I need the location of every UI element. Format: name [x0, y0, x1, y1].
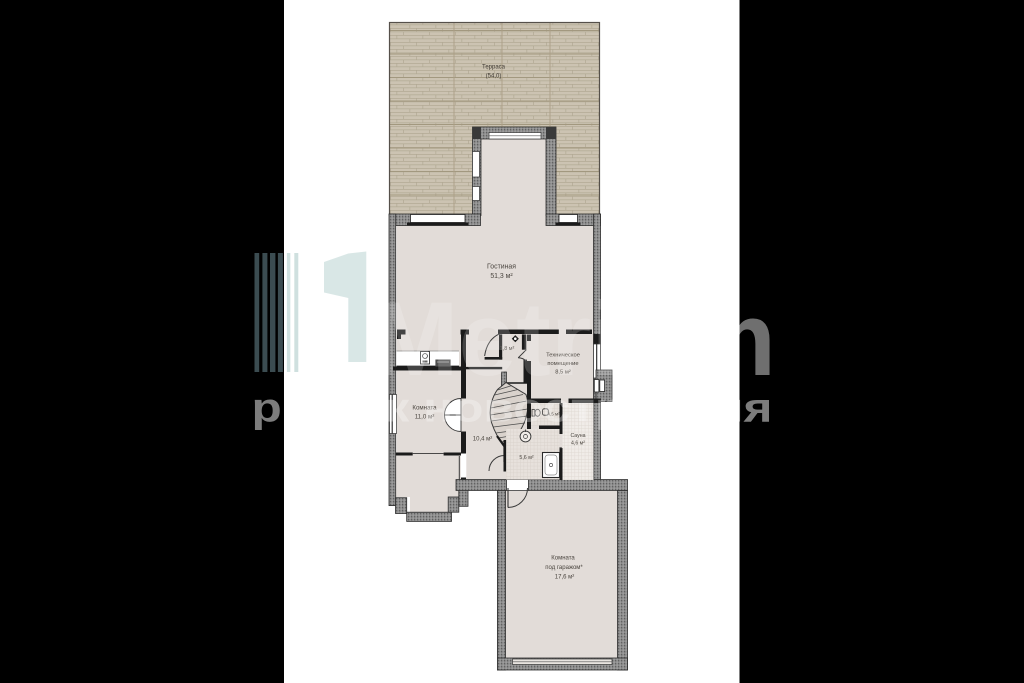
svg-text:рынок новостроения: рынок новостроения: [252, 385, 773, 431]
svg-text:под гаражом*: под гаражом*: [545, 565, 583, 571]
svg-text:Терраса: Терраса: [482, 65, 506, 71]
svg-text:Гостиная: Гостиная: [487, 264, 516, 271]
svg-text:5,6 м²: 5,6 м²: [519, 455, 533, 461]
svg-text:Сауна: Сауна: [571, 433, 586, 439]
svg-text:4,6 м²: 4,6 м²: [571, 441, 585, 447]
svg-text:51,3 м²: 51,3 м²: [490, 273, 513, 280]
svg-text:17,6 м²: 17,6 м²: [555, 575, 574, 581]
svg-text:Metrium: Metrium: [372, 281, 776, 398]
svg-text:Комната: Комната: [551, 556, 575, 562]
svg-text:10,4 м²: 10,4 м²: [473, 437, 492, 443]
svg-text:(54,0): (54,0): [486, 74, 502, 80]
